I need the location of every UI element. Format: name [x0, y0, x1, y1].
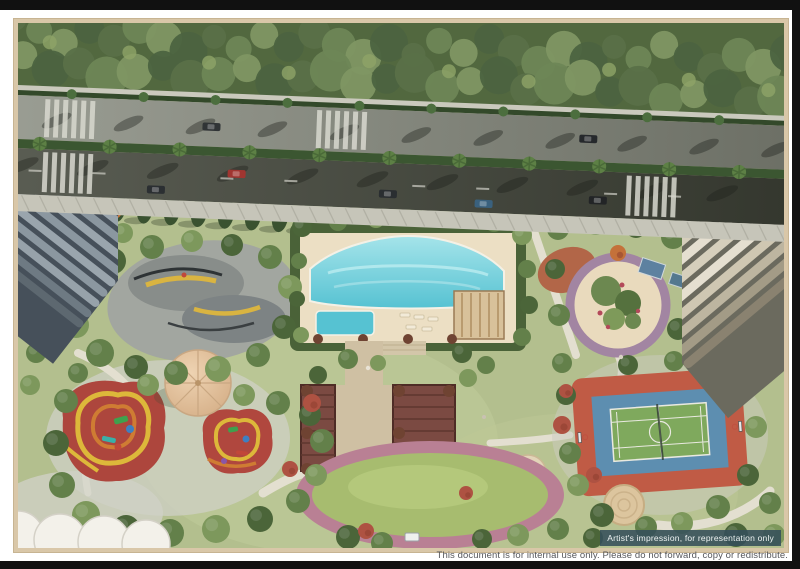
viewport-bar-bottom [0, 561, 800, 569]
car [579, 135, 597, 144]
lawn-cart [405, 533, 419, 541]
swimming-pool-area [290, 223, 526, 355]
avenue-band [18, 23, 784, 243]
masterplan-render: Artist's impression, for representation … [18, 23, 784, 548]
viewport-bar-right [792, 0, 800, 569]
footer-disclaimer: This document is for internal use only. … [437, 550, 788, 561]
car [202, 122, 220, 131]
aerial-scene [18, 23, 784, 548]
car [147, 185, 165, 194]
render-frame: Artist's impression, for representation … [14, 19, 788, 552]
viewport-bar-top [0, 0, 800, 10]
car [589, 196, 607, 205]
car [474, 199, 492, 208]
car [227, 169, 245, 178]
artist-impression-badge: Artist's impression, for representation … [600, 530, 781, 546]
kids-pool [316, 311, 374, 335]
car [379, 190, 397, 199]
document-page: { "frame": { "border_color": "#d9c7a8" }… [0, 0, 800, 569]
skater-figure [182, 273, 187, 278]
